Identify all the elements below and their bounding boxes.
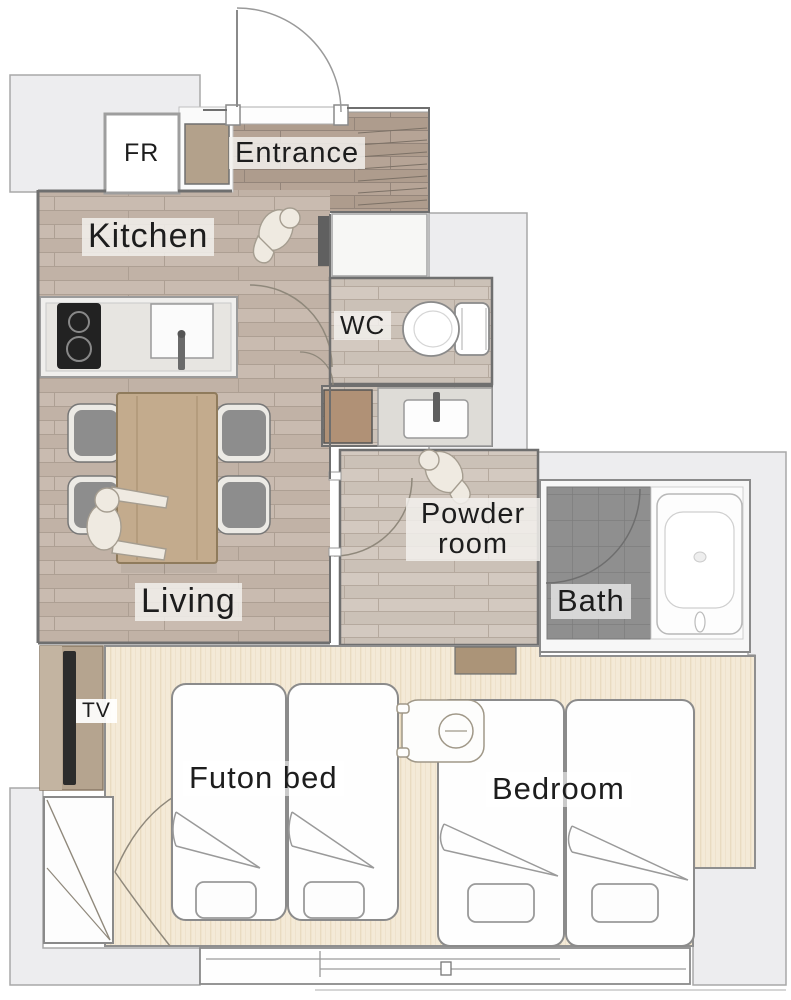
powder-room-label-line2: room bbox=[406, 529, 540, 559]
fridge-label: FR bbox=[118, 139, 165, 167]
wc-label: WC bbox=[334, 311, 391, 340]
pillow bbox=[592, 884, 658, 922]
entrance-door-icon bbox=[226, 8, 348, 125]
bathroom bbox=[540, 480, 750, 652]
pillow bbox=[196, 882, 256, 918]
step-threshold bbox=[455, 647, 516, 674]
dining-table bbox=[117, 393, 217, 563]
person-figure-bed bbox=[397, 700, 484, 762]
entrance-label: Entrance bbox=[229, 137, 365, 169]
door-jamb bbox=[329, 548, 341, 556]
futon-beds bbox=[172, 684, 398, 920]
living-label: Living bbox=[135, 583, 242, 621]
toilet-icon bbox=[403, 302, 489, 356]
entrance-closet bbox=[332, 214, 427, 276]
laundry-space bbox=[324, 390, 372, 443]
futon-bed-label: Futon bed bbox=[183, 761, 344, 796]
bedroom-label: Bedroom bbox=[486, 772, 631, 807]
pillow bbox=[304, 882, 364, 918]
chair bbox=[68, 404, 122, 462]
tv-label: TV bbox=[76, 699, 117, 723]
kitchen-label: Kitchen bbox=[82, 218, 214, 256]
chair bbox=[216, 404, 270, 462]
kitchen-counter bbox=[40, 297, 237, 377]
powder-room-label: Powder room bbox=[406, 498, 540, 561]
chair bbox=[216, 476, 270, 534]
floor-plan: FR Entrance Kitchen WC Powder room Bath … bbox=[0, 0, 791, 1000]
washbasin-icon bbox=[378, 388, 492, 446]
sliding-window-icon bbox=[200, 948, 690, 984]
cooktop-icon bbox=[57, 303, 101, 369]
tv-icon bbox=[63, 651, 76, 785]
bathtub-icon bbox=[657, 494, 742, 634]
bath-label: Bath bbox=[551, 584, 631, 619]
shoe-cabinet bbox=[185, 124, 229, 184]
pillow bbox=[468, 884, 534, 922]
powder-room-label-line1: Powder bbox=[406, 499, 540, 529]
